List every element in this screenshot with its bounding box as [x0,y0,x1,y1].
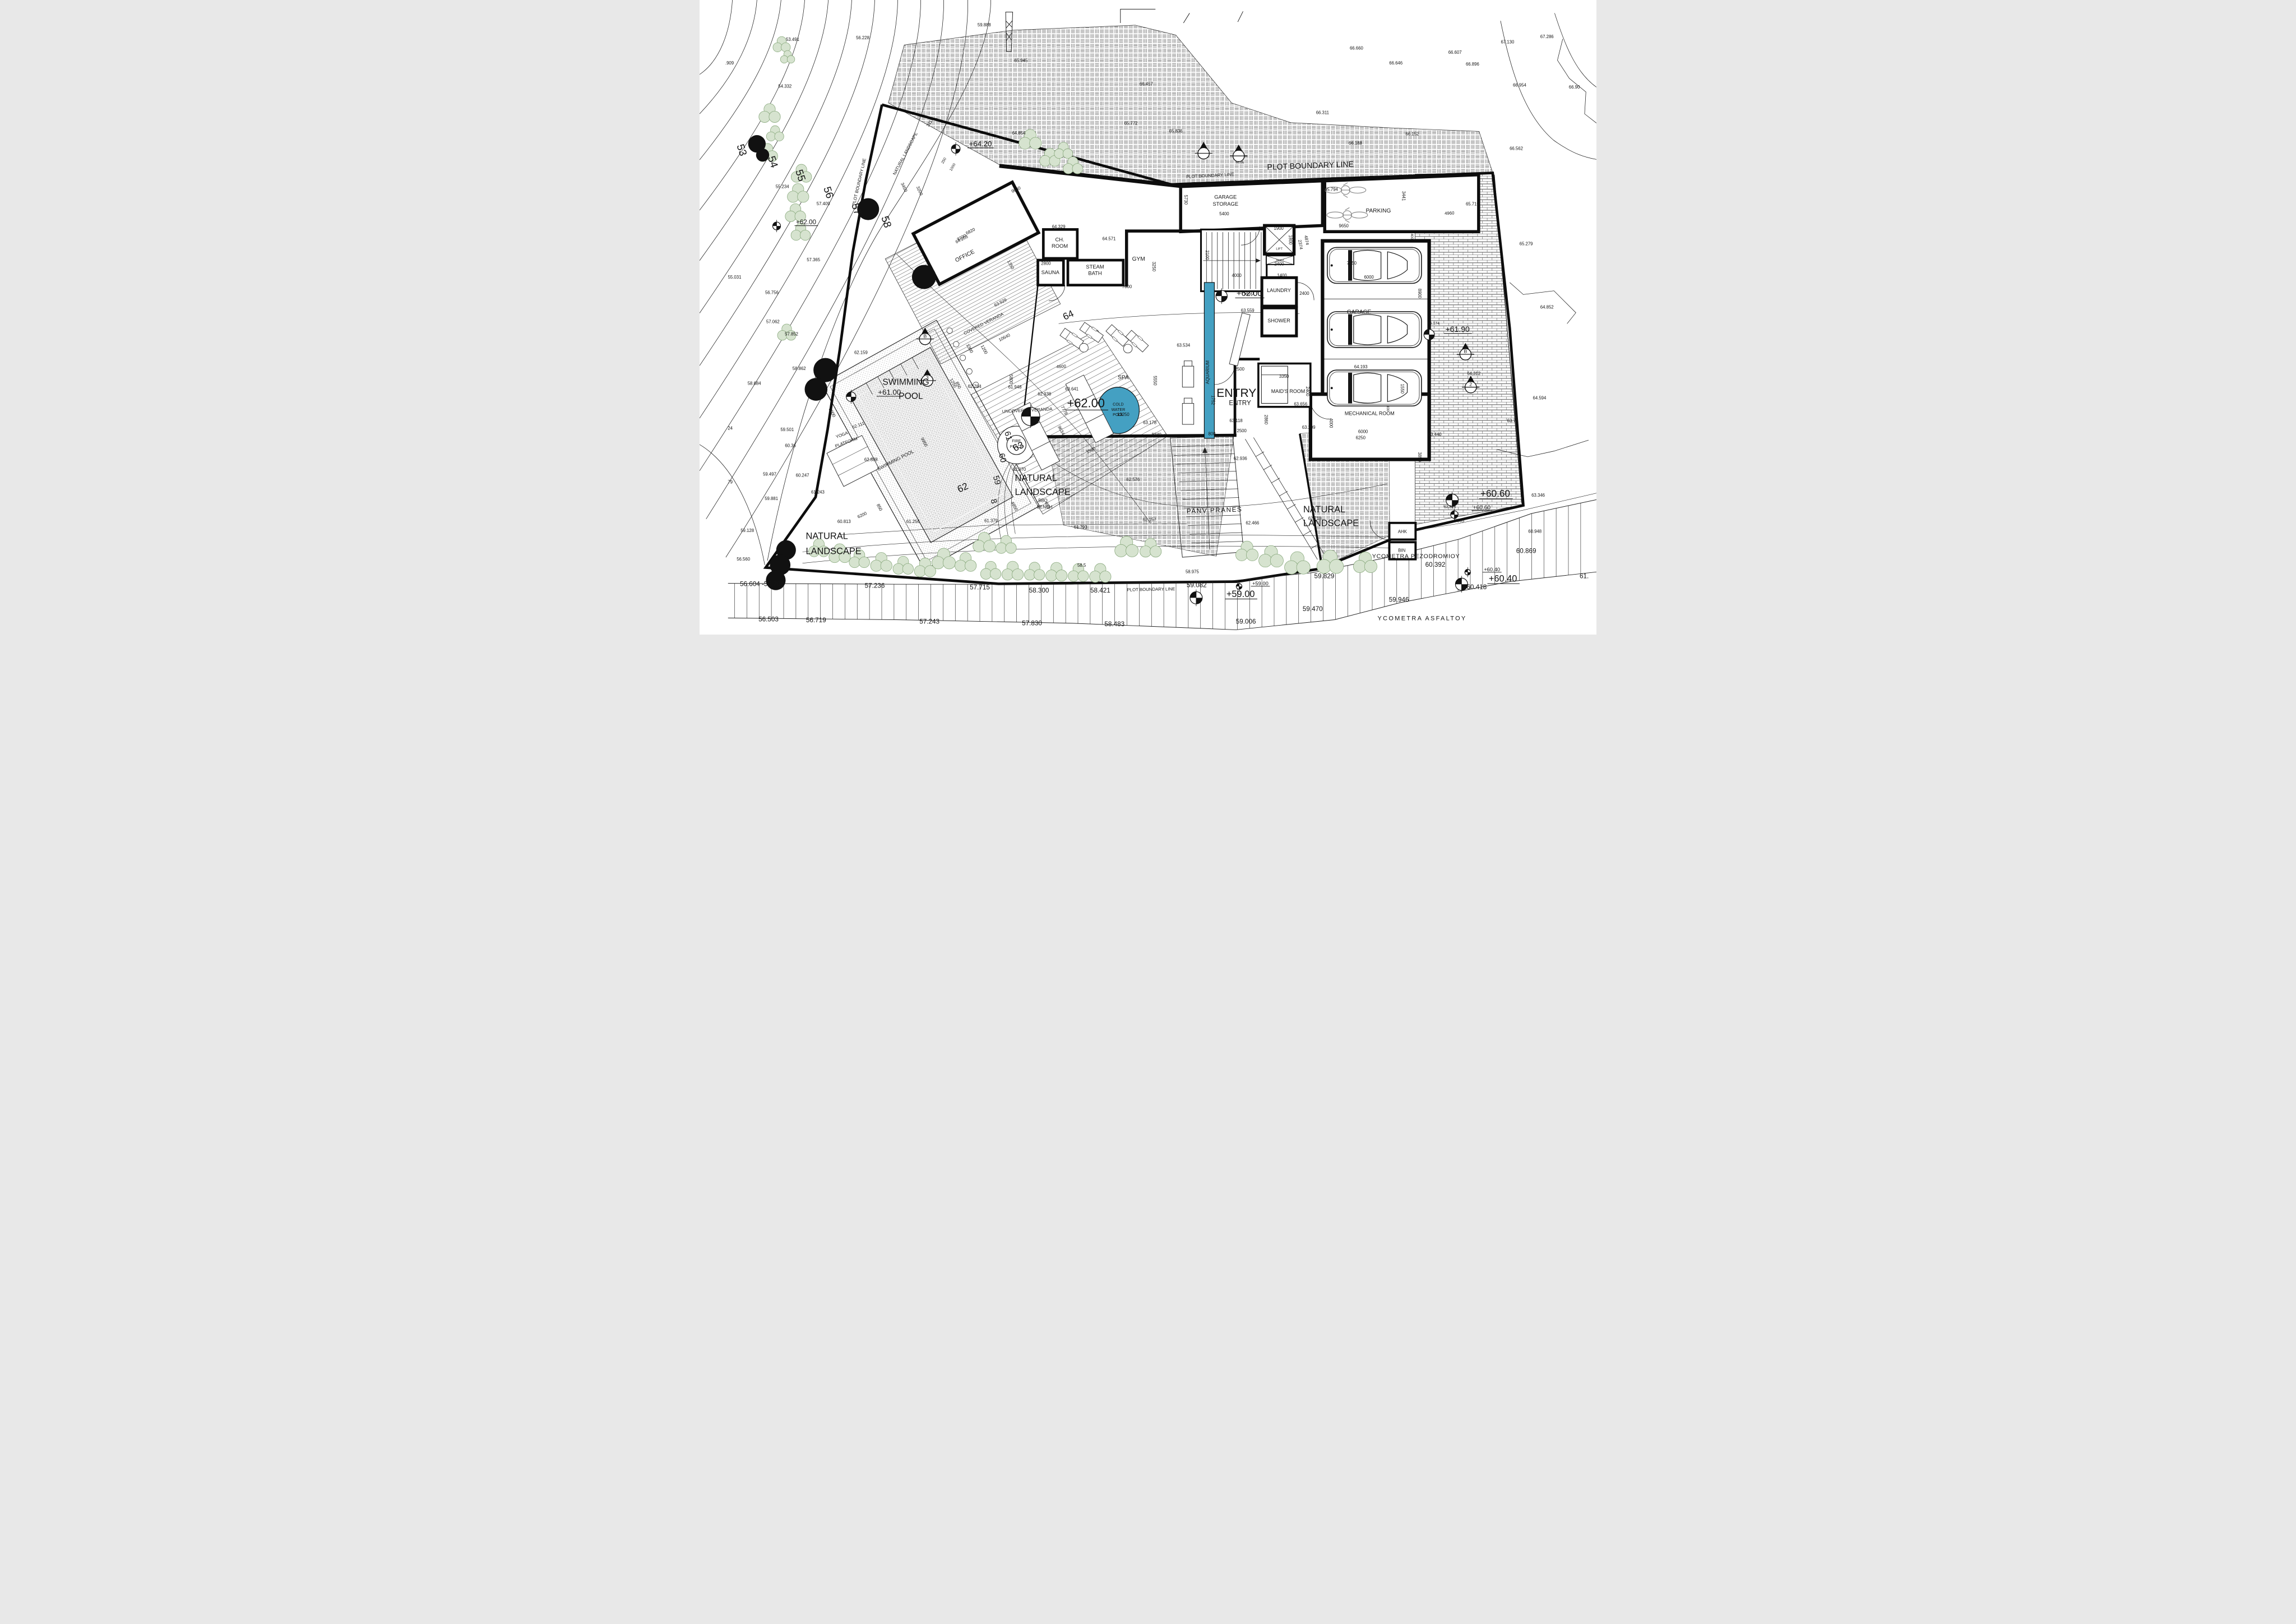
dimension: 3441 [1401,191,1406,201]
spot-elevation: 63.73 [1507,418,1519,423]
elevation-value: +59.00 [1252,581,1269,586]
dimension: 2100 [1205,250,1210,260]
spot-elevation: 66.660 [1350,46,1364,51]
spot-elevation: 57.365 [807,257,821,262]
spot-elevation: 62.764 [968,384,982,389]
dimension: 5730 [1183,195,1188,205]
spot-elevation: 62.157 [1143,517,1156,522]
dimension: 2800 [1041,261,1051,266]
dimension: 300 [1386,405,1390,411]
room-label: ENTRY [1229,400,1251,407]
street-label: 57.715 [970,584,990,591]
spot-elevation: 66.607 [1448,50,1462,55]
spot-elevation: 64.852 [1540,304,1554,309]
spot-elevation: 61.379 [984,518,998,523]
dark-tree-icon [912,265,936,289]
room-label: AQUARIUM [1205,360,1210,384]
street-label: 56.604 -56.704 [740,580,784,587]
dimension: 7000 [1122,284,1132,289]
dimension: 4000 [1232,273,1242,278]
street-label: 58.421 [1090,587,1110,594]
room-label: MAID'S ROOM [1271,388,1306,394]
spot-elevation: 56.560 [737,557,751,562]
dimension: 3250 [1151,262,1156,272]
spot-elevation: 56.756 [765,290,779,295]
dimension: 8340 [1152,432,1162,437]
dimension: 13250 [1117,412,1130,417]
garage-cars [1327,247,1422,406]
spot-elevation: 66.188 [1349,141,1362,146]
spot-elevation: 62.466 [1246,521,1259,526]
spot-elevation: 63.209 [1302,425,1316,430]
spot-elevation: 79 [728,479,733,484]
spot-elevation: 62.576 [1127,477,1140,482]
spot-elevation: 57.062 [766,320,780,325]
room-label: STORAGE [1212,201,1238,207]
room-label: COLD [1113,402,1124,406]
site-plan-sheet: +64.20+62.00+62.00+62.00+61.00+61.90+60.… [700,0,1596,635]
spot-elevation: 53.491 [786,37,799,42]
spot-elevation: 64.193 [1354,364,1368,369]
dimension: 4600 [1056,364,1066,369]
spot-elevation: 66.90 [1569,85,1580,90]
spot-elevation: 62.718 [1308,516,1322,521]
south-facade [1021,436,1235,437]
spot-elevation: 59.881 [765,496,778,501]
spot-elevation: 59.946 [1389,596,1409,603]
spot-elevation: 59.829 [1314,572,1335,580]
spot-elevation: 62.936 [1234,456,1247,461]
spot-elevation: 58.684 [748,381,762,386]
dimension: 5550 [1152,376,1158,386]
spot-elevation: 63.534 [1177,343,1191,348]
misc-label: YCOMETRA PEZODROMIOY [1372,553,1460,559]
elevation-value: +61.90 [1445,325,1470,334]
spot-elevation: 61.256 [906,519,920,524]
dimension: 6250 [1356,436,1366,441]
spot-elevation: 58.862 [793,366,806,371]
aquarium [1204,283,1214,438]
dimension: 2500 [1237,428,1247,433]
area-label: NATURAL [1015,473,1057,483]
dimension: 800 [1209,432,1216,437]
dimension: 5400 [1219,211,1229,216]
room-label: GARAGE [1347,309,1372,315]
spot-elevation: 63.816 [1444,505,1456,509]
section-letter: 2 [1469,381,1472,387]
spot-elevation: 64.571 [1103,237,1116,242]
room-label: WATER [1112,408,1126,412]
spot-elevation: 63.656 [1294,401,1307,406]
street-label: 57.830 [1022,620,1042,627]
spot-elevation: 63.178 [1143,420,1156,425]
section-letter: B [1464,349,1468,354]
spot-elevation: 65.794 [1325,187,1339,192]
spot-elevation: 65.279 [1520,241,1533,246]
spot-elevation: 65.836 [1169,129,1183,134]
dimension: 7250 [1347,261,1357,266]
spot-elevation: 54.332 [778,84,791,89]
room-label: STEAM [1086,264,1104,270]
spot-elevation: 62.888 [864,457,878,462]
spot-elevation: 59.501 [780,427,794,432]
spot-elevation: 57.852 [785,331,798,336]
dimension: 1752 [1210,395,1215,405]
side-table-icon [1080,344,1089,353]
dimension: 2860 [1263,415,1269,425]
spot-elevation: 62.938 [1038,391,1051,396]
spot-elevation: 65.772 [1124,121,1138,126]
spot-elevation: 65.174 [1428,322,1440,326]
dimension: 2400 [1299,291,1309,296]
dimension: 4960 [1445,210,1455,216]
spot-elevation: 57.409 [817,201,830,206]
spot-elevation: 60.948 [1528,529,1542,534]
dimension: 3850 [1417,452,1422,462]
room-label: SAUNA [1041,270,1060,275]
dimension: 6000 [1364,275,1374,280]
room-label: SPA [1118,375,1129,381]
dimension: 9650 [1339,223,1349,228]
spot-elevation: 66.311 [1316,110,1329,115]
room-label: GARAGE [1214,195,1237,200]
dimension: 2400 [1274,261,1284,266]
elevation-value: +59.00 [1226,589,1255,599]
dimension: 1800 [1288,235,1293,245]
spot-elevation: 66.896 [1466,62,1479,67]
spot-elevation: 63.641 [1065,386,1078,391]
spot-elevation: 58.5 [1077,563,1086,568]
dimension: 2500 [1235,367,1245,372]
spot-elevation: .909 [725,61,734,66]
misc-label: YCOMETRA ASFALTOY [1378,615,1467,622]
area-label: LANDSCAPE [1015,487,1071,497]
boundary-label: PLOT BOUNDARY LINE [1127,586,1175,592]
room-label: PARKING [1365,208,1391,214]
spot-elevation: 64.329 [1052,224,1066,229]
spot-elevation: 63.346 [1531,493,1545,498]
dimension: 1900 [1274,226,1284,231]
room-label: GYM [1132,256,1145,262]
spot-elevation: 58.975 [1186,569,1200,574]
elevation-value: +64.20 [969,140,992,148]
spot-elevation: 56.228 [856,35,869,40]
room-label: SHOWER [1267,318,1290,323]
room-label: POOL [899,392,923,401]
spot-elevation: 66.457 [1140,81,1153,86]
spot-elevation: 60.813 [837,519,851,524]
street-label: 57.236 [865,582,885,589]
spot-elevation: 64.594 [1533,396,1547,401]
area-label: NATURAL [806,531,848,542]
parking-room [1325,175,1479,232]
spot-elevation: 64.854 [1012,131,1026,136]
dimension: 400 [1410,234,1414,240]
street-label: 57.243 [919,618,939,626]
room-label: BATH [1088,271,1101,276]
maids-room [1258,363,1311,406]
spot-elevation: 59.128 [740,528,754,533]
spot-elevation: 66.954 [1513,83,1527,88]
dimension: 2400 [1305,386,1310,396]
room-label: SWIMMING [882,378,929,387]
street-label: 58.300 [1029,587,1049,594]
spot-elevation: 64.312 [1467,371,1480,376]
spot-elevation: 59.006 [1236,618,1256,626]
spot-elevation: 61.793 [1074,525,1087,530]
spot-elevation: 63.440 [1428,432,1442,437]
elevation-value: +62.00 [1067,396,1104,410]
dimension: 1550 [1400,384,1405,394]
room-label: AHK [1398,529,1408,534]
room-label: MECHANICAL ROOM [1345,411,1395,417]
spot-elevation: 63.559 [1241,308,1255,313]
dimension: 5800 [1008,374,1013,385]
area-label: NATURAL [1303,505,1345,515]
dimension: 5650 [1244,291,1254,296]
spot-elevation: 66.152 [1406,131,1419,136]
room-label: ENTRY [1216,387,1256,400]
dimension: 1400 [1277,273,1287,278]
spot-elevation: 61.948 [1008,385,1022,390]
dimension: 8900 [1417,289,1422,299]
street-label: 56.719 [806,617,826,624]
spot-elevation: 61.243 [811,489,825,494]
spot-elevation: 60.418 [1466,584,1487,591]
area-label: LANDSCAPE [806,546,861,556]
garage-storage-room [1181,181,1322,232]
room-label: LAUNDRY [1267,288,1291,293]
spot-elevation: 59.497 [763,471,776,476]
spot-elevation: 62.159 [854,350,868,355]
side-table-icon [1123,344,1132,353]
dimension: 4000 [1328,418,1334,428]
spot-elevation: 65.945 [1015,58,1029,63]
spot-elevation: 66.562 [1510,146,1523,151]
dimension: 6000 [1358,429,1368,434]
dark-tree-icon [805,378,828,401]
spot-elevation: 59.082 [1187,582,1207,589]
elevation-value: +60.40 [1489,573,1517,584]
section-letter: B [923,333,927,339]
spot-elevation: 61. [1580,572,1589,580]
elevation-value: +60.60 [1480,488,1510,499]
spot-elevation: 55.234 [776,184,790,189]
dimension: 3350 [1279,374,1289,379]
street-label: 58.483 [1104,621,1124,628]
spot-elevation: 63.118 [1229,418,1242,423]
spot-elevation: 66.646 [1389,61,1402,66]
spot-elevation: 67.130 [1501,39,1515,44]
spot-elevation: 67.286 [1540,34,1554,39]
spot-elevation: 66.05 [1236,161,1244,164]
room-label: BIN [1398,548,1405,553]
spot-elevation: 24 [728,425,733,431]
elevation-value: +60.40 [1484,567,1500,572]
elevation-value: +62.00 [796,219,817,226]
site-plan-drawing: +64.20+62.00+62.00+62.00+61.00+61.90+60.… [700,0,1596,635]
spot-elevation: 59.470 [1303,605,1323,613]
spot-elevation: 60.247 [796,473,809,478]
spot-elevation: 55.031 [728,275,742,280]
room-label: CH. [1056,237,1064,242]
spot-elevation: 62.070 [1012,467,1026,472]
elevation-value: +61.00 [878,388,901,396]
spot-elevation: 65.719 [1466,201,1479,206]
room-label: LIFT [1276,247,1283,251]
elevation-value: +60.60 [1473,505,1491,511]
spot-elevation: 60.869 [1516,547,1536,554]
spot-elevation: 60.36 [785,443,796,448]
room-label: ROOM [1052,243,1068,249]
spot-elevation: 59.888 [978,22,991,27]
spot-elevation: 60.392 [1425,561,1446,568]
dimension: 5865 [1455,518,1465,523]
street-label: 56.503 [758,616,779,623]
